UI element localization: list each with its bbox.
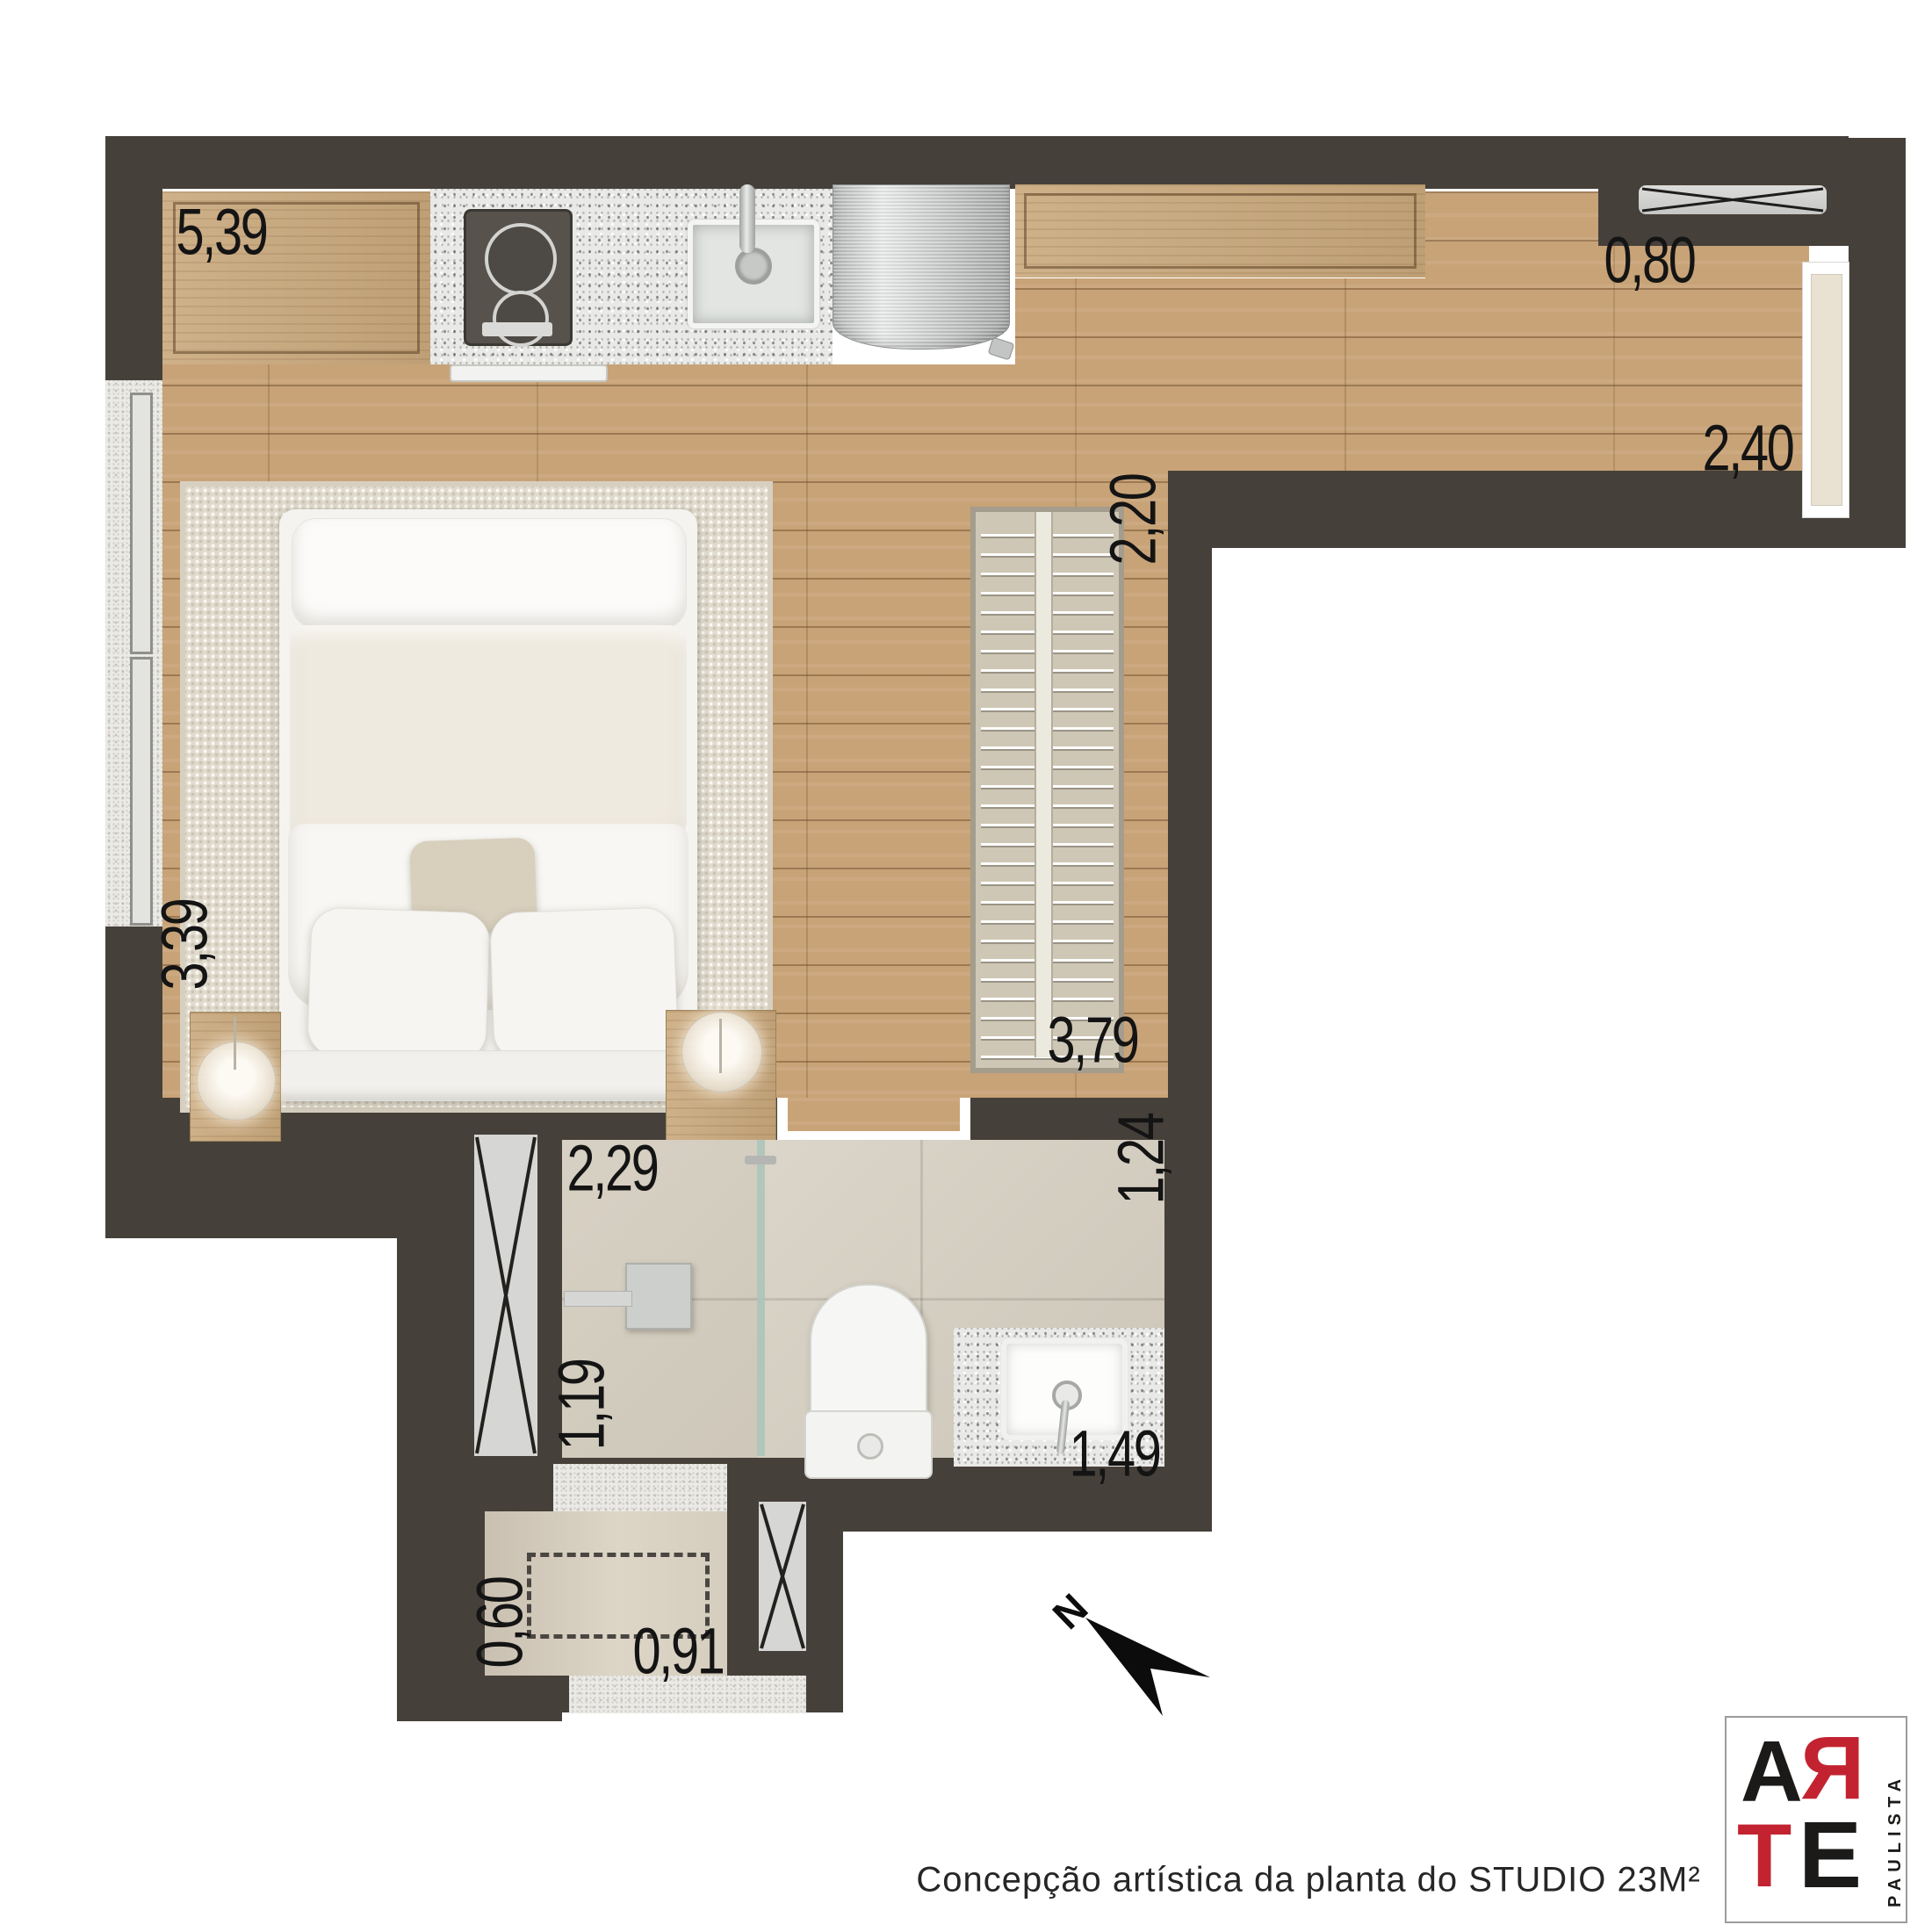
- fridge-texture: [833, 185, 1009, 349]
- north-arrow-icon: N: [1050, 1568, 1226, 1727]
- window-frame-lower: [130, 657, 153, 926]
- window-frame-upper: [130, 393, 153, 654]
- logo-arte-paulista: A Я T E PAULISTA: [1725, 1716, 1907, 1923]
- laundry-texture-top: [553, 1464, 727, 1511]
- north-label: N: [1050, 1584, 1097, 1637]
- shower-mixer-icon: [625, 1263, 692, 1330]
- toilet-flush-button: [857, 1433, 883, 1460]
- cooktop-icon: [464, 209, 573, 346]
- bed-pillow: [292, 518, 687, 629]
- duct-left-x: [474, 1135, 537, 1456]
- wall-left-top: [105, 189, 162, 380]
- entry-sideboard-recess: [1024, 193, 1417, 269]
- dim-entry-hall-width: 2,40: [1703, 411, 1793, 486]
- table-lamp-left-icon: [197, 1042, 276, 1121]
- dim-bedroom-side: 3,39: [148, 900, 222, 991]
- fridge-icon: [833, 184, 1010, 350]
- floor-plan: 5,39 0,80 2,40 2,20 3,39 3,79 2,29 1,24 …: [0, 0, 1932, 1932]
- cushion-right: [489, 906, 679, 1062]
- duct-right-x: [759, 1502, 806, 1651]
- logo-side-text: PAULISTA: [1886, 1732, 1904, 1907]
- shower-arm-icon: [564, 1291, 632, 1307]
- fridge-handle-icon: [988, 336, 1015, 360]
- bed-footboard: [263, 1050, 715, 1101]
- cushion-left: [306, 906, 491, 1062]
- dim-vanity-run: 1,49: [1070, 1417, 1160, 1491]
- hall-window-sill: [1811, 274, 1842, 506]
- duct-right: [759, 1502, 806, 1651]
- dim-closet-length: 2,20: [1096, 475, 1171, 566]
- duct-left: [474, 1135, 537, 1456]
- entry-sideboard: [1015, 184, 1425, 278]
- shower-glass-bracket: [745, 1156, 776, 1164]
- dim-bathroom-width: 2,29: [567, 1131, 658, 1206]
- toilet-icon: [810, 1284, 927, 1428]
- table-lamp-left-stem: [234, 1017, 236, 1070]
- dim-entry-recess: 0,80: [1604, 223, 1695, 298]
- dim-closet-run: 3,79: [1048, 1003, 1138, 1078]
- wardrobe-rail: [1034, 512, 1053, 1057]
- table-lamp-right-stem: [719, 1019, 722, 1073]
- sink-drain-icon: [735, 248, 772, 285]
- logo-letter-t: T: [1737, 1811, 1791, 1900]
- shower-glass-divider: [757, 1140, 765, 1456]
- bed-sheet-fold: [290, 625, 687, 847]
- entry-door-icon: [1639, 185, 1827, 214]
- toilet-tank-icon: [804, 1410, 933, 1479]
- logo-letter-r: Я: [1800, 1723, 1864, 1813]
- caption: Concepção artística da planta do STUDIO …: [916, 1861, 1700, 1900]
- dim-shower-depth: 1,19: [544, 1360, 619, 1451]
- cooktop-burner-small-icon: [493, 291, 549, 347]
- cooktop-control-strip: [482, 322, 552, 336]
- logo-letter-e: E: [1799, 1807, 1862, 1902]
- wall-top: [105, 136, 1849, 189]
- entry-door-x: [1639, 185, 1827, 214]
- sink-faucet-icon: [739, 184, 755, 253]
- logo-letter-a: A: [1741, 1728, 1803, 1814]
- oven-handle-icon: [450, 364, 608, 382]
- table-lamp-right-icon: [681, 1012, 762, 1092]
- dim-laundry-depth: 0,60: [463, 1578, 537, 1669]
- wardrobe: [970, 507, 1124, 1073]
- wall-right: [1849, 138, 1906, 548]
- dim-bathroom-depth: 1,24: [1104, 1114, 1179, 1205]
- dim-kitchen-run: 5,39: [177, 195, 267, 270]
- dim-laundry-width: 0,91: [633, 1614, 724, 1689]
- bathroom-door-sill: [777, 1131, 970, 1140]
- cooktop-burner-large-icon: [485, 223, 557, 295]
